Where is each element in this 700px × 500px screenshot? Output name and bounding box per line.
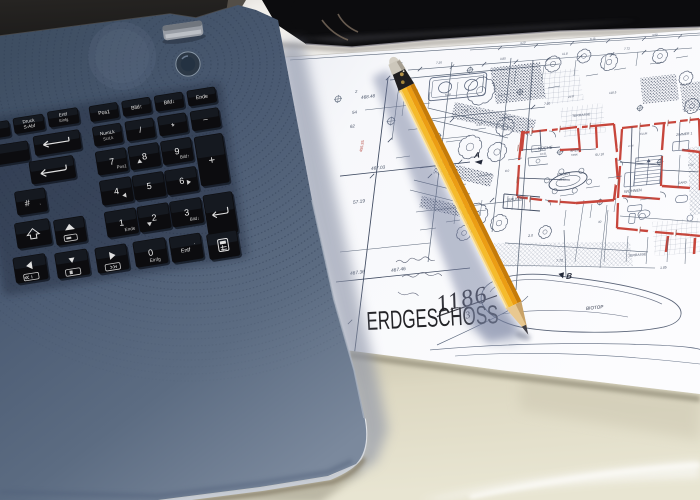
svg-text:7.20: 7.20	[544, 101, 551, 106]
svg-text:42.5: 42.5	[627, 194, 633, 199]
svg-text:7.48: 7.48	[462, 108, 468, 113]
svg-text:28.02: 28.02	[559, 177, 566, 182]
svg-text:1.85: 1.85	[660, 265, 667, 270]
svg-text:3.85: 3.85	[500, 56, 506, 61]
svg-text:A: A	[473, 150, 481, 160]
svg-text:10.01: 10.01	[540, 151, 547, 156]
svg-text:7.72: 7.72	[624, 46, 630, 51]
svg-text:2.0: 2.0	[528, 234, 533, 238]
svg-text:24 P: 24 P	[568, 94, 574, 99]
svg-text:7.20: 7.20	[436, 60, 442, 65]
svg-text:B: B	[566, 271, 573, 281]
svg-text:KAP: KAP	[445, 92, 451, 97]
svg-text:2.44: 2.44	[628, 143, 634, 148]
svg-text:1.24: 1.24	[688, 162, 694, 167]
svg-text:7.72: 7.72	[556, 258, 563, 263]
svg-text:4.10: 4.10	[476, 122, 482, 127]
svg-text:11.8: 11.8	[562, 51, 568, 56]
svg-text:TANK: TANK	[571, 152, 578, 157]
svg-text:FLUR: FLUR	[640, 131, 648, 136]
svg-text:3.90: 3.90	[652, 32, 658, 37]
svg-text:8.0: 8.0	[505, 169, 510, 173]
svg-text:118.5: 118.5	[609, 90, 617, 95]
